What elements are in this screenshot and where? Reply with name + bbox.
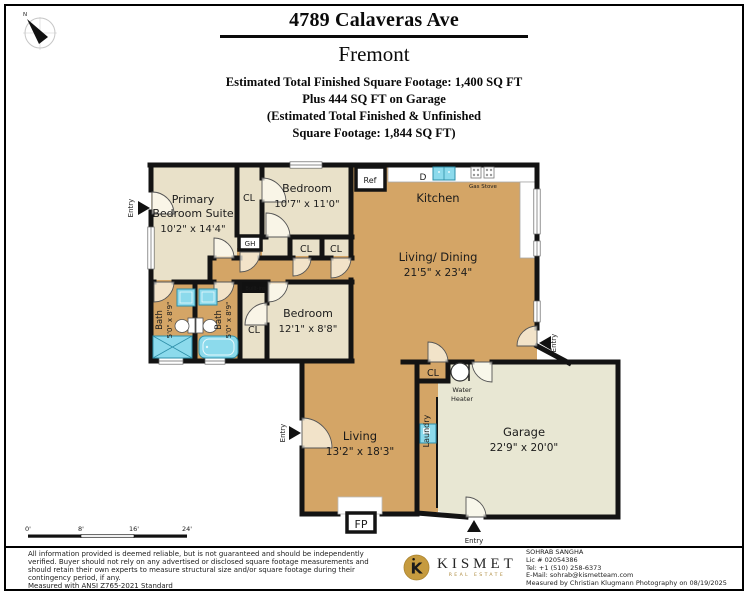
compass-icon: N [23, 12, 57, 50]
floor-plan-drawing: N [0, 0, 748, 600]
entry-label: Entry [127, 199, 135, 218]
kitchen-counter-right [520, 182, 535, 258]
room-dims-living-dining: 21'5" x 23'4" [404, 267, 472, 279]
entry-label: Entry [279, 424, 287, 443]
fireplace-label: FP [355, 518, 368, 531]
room-label-bedroom-mid: Bedroom [283, 307, 333, 320]
bath-sink-icon [177, 289, 195, 306]
room-label-kitchen: Kitchen [416, 191, 459, 205]
closet-label: CL [330, 244, 343, 255]
dishwasher-label: D [420, 173, 427, 183]
disclaimer-line: Measured with ANSI Z765-2021 Standard [28, 583, 406, 591]
gas-stove-label: Gas Stove [469, 184, 498, 190]
measured-by-note: Measured by Christian Klugmann Photograp… [526, 580, 741, 588]
room-dims-bath-left: 5'0" x 8'9" [166, 302, 174, 339]
room-dims-bath-right: 5'0" x 8'9" [225, 302, 233, 339]
room-label-living-dining: Living/ Dining [399, 250, 478, 264]
kismet-logo-icon: K [403, 554, 430, 581]
room-dims-primary: 10'2" x 14'4" [160, 224, 225, 235]
room-label-bath-left: Bath [155, 310, 165, 330]
room-dims-bedroom-top: 10'7" x 11'0" [274, 199, 339, 210]
refrigerator-label: Ref [364, 176, 377, 185]
room-label-laundry: Laundry [422, 414, 431, 447]
entry-label: Entry [550, 334, 558, 353]
brand-name: KISMET [437, 557, 517, 571]
bath-sink-icon [199, 289, 217, 305]
room-label-bath-right: Bath [214, 310, 224, 330]
footer-divider [6, 546, 742, 548]
scale-tick-8: 8' [78, 525, 84, 533]
scale-bar: 0' 8' 16' 24' [25, 525, 192, 538]
entry-arrow-icon [467, 520, 481, 532]
closet-label: CL [243, 193, 256, 204]
scale-tick-16: 16' [129, 525, 139, 533]
brand-monogram: K [411, 559, 424, 577]
built-ins-label: Built-ins [245, 286, 266, 292]
toilet-icon [175, 318, 195, 333]
floor-plan-page: 4789 Calaveras Ave Fremont Estimated Tot… [0, 0, 748, 600]
room-label-primary-2: Bedroom Suite [152, 207, 234, 220]
water-heater-label-2: Heater [451, 395, 473, 403]
scale-tick-0: 0' [25, 525, 31, 533]
compass-north-label: N [23, 12, 27, 18]
water-heater-label-1: Water [452, 386, 472, 394]
room-label-bedroom-top: Bedroom [282, 182, 332, 195]
agent-contact-block: SOHRAB SANGHA Lic # 02054386 Tel: +1 (51… [526, 549, 741, 588]
disclaimer-text: All information provided is deemed relia… [28, 551, 406, 591]
entry-label: Entry [465, 537, 484, 545]
room-dims-garage: 22'9" x 20'0" [490, 442, 558, 454]
room-label-primary-1: Primary [172, 193, 215, 206]
room-label-garage: Garage [503, 425, 545, 439]
kitchen-counter-top [388, 167, 535, 182]
room-dims-bedroom-mid: 12'1" x 8'8" [279, 324, 338, 335]
entry-arrow-icon [289, 426, 301, 440]
closet-label: CL [300, 244, 313, 255]
gh-label: GH [245, 240, 256, 248]
brand-tagline: REAL ESTATE [437, 573, 517, 578]
kitchen-sink-icon [433, 167, 455, 180]
room-dims-living: 13'2" x 18'3" [326, 446, 394, 458]
water-heater-icon [451, 363, 469, 381]
scale-tick-24: 24' [182, 525, 192, 533]
entry-arrow-icon [138, 201, 150, 215]
brand-logo: K KISMET REAL ESTATE [403, 554, 517, 581]
closet-label: CL [427, 368, 440, 379]
room-label-living: Living [343, 429, 377, 443]
closet-label: CL [248, 325, 261, 336]
